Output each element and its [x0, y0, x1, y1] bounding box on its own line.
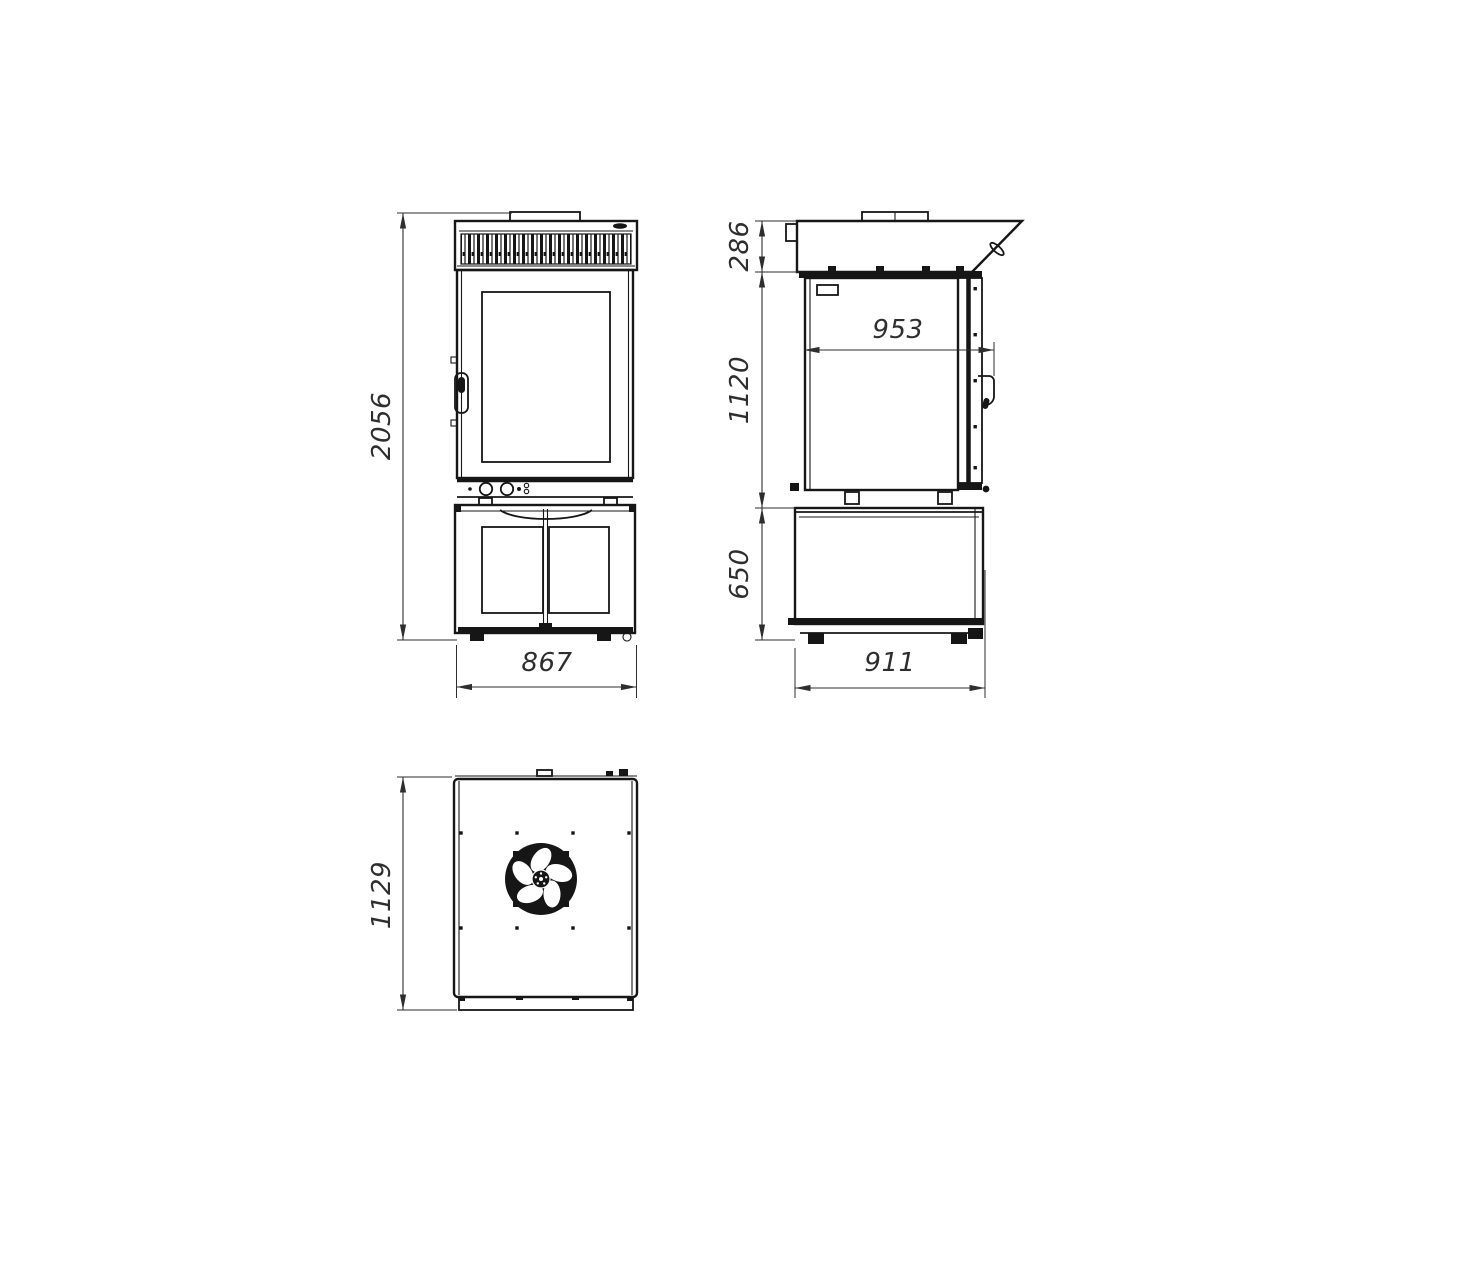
side-ventilation-hood: [786, 221, 1022, 272]
stand-caster-icon: [623, 633, 631, 641]
side-stand-foot-right: [951, 633, 967, 644]
technical-drawing-page: 2056 867: [0, 0, 1467, 1284]
dim-side-oven-depth: 953: [804, 315, 994, 376]
side-view: 286 1120 650 953 911: [725, 212, 1022, 698]
dim-side-heights: 286 1120 650: [725, 220, 799, 640]
side-hood-tab: [786, 224, 797, 241]
front-oven-body: [451, 270, 633, 478]
front-view: 2056 867: [367, 212, 637, 698]
switch-dot-bottom: [524, 489, 528, 493]
dim-label-side-stand-height: 650: [725, 548, 755, 599]
dim-label-front-total-height: 2056: [367, 392, 397, 460]
dim-front-base-width: 867: [457, 645, 637, 698]
switch-dot-top: [524, 483, 528, 487]
side-door-top-cap: [956, 271, 982, 278]
stand-bottom-rail: [458, 627, 633, 633]
dim-label-side-hood-height: 286: [725, 220, 755, 271]
front-hood-indicator: [613, 223, 627, 229]
dim-label-side-oven-depth: 953: [872, 315, 923, 345]
side-oven-foot-right: [938, 492, 952, 504]
dim-label-top-overall-depth: 1129: [367, 861, 397, 929]
dim-label-front-base-width: 867: [521, 648, 572, 678]
side-rating-plate: [817, 285, 838, 295]
side-chimney: [862, 212, 928, 221]
control-knob-left: [480, 483, 492, 495]
dim-top-overall-depth: 1129: [367, 777, 457, 1010]
dim-label-side-stand-depth: 911: [864, 648, 915, 678]
dim-label-side-oven-height: 1120: [725, 356, 755, 424]
top-view: 1129: [367, 769, 637, 1010]
stand-door-panel-left: [482, 527, 543, 613]
side-door-bottom-bracket: [958, 483, 982, 490]
front-louver-grille: [461, 234, 631, 264]
indicator-lamp-icon: [468, 487, 472, 491]
top-chimney: [537, 770, 552, 776]
dim-front-total-height: 2056: [367, 213, 512, 640]
stand-foot-right: [597, 633, 611, 641]
front-chimney: [510, 212, 580, 221]
stand-door-panel-right: [549, 527, 609, 613]
side-stand-bottom-rail: [795, 618, 983, 624]
front-door-glass: [482, 292, 610, 462]
control-knob-right: [501, 483, 513, 495]
stand-foot-left: [470, 633, 484, 641]
front-control-panel: [457, 480, 633, 497]
front-ventilation-hood: [455, 221, 637, 270]
side-stand-foot-left: [808, 633, 824, 644]
front-stand-cabinet: [455, 505, 635, 641]
fan-icon: [505, 843, 577, 915]
side-oven-body: [790, 271, 994, 504]
indicator-dot-icon: [517, 487, 521, 491]
side-hood-hook: [989, 241, 1006, 257]
side-oven-foot-left: [845, 492, 859, 504]
technical-drawing-canvas: 2056 867: [0, 0, 1467, 1284]
side-stand-cabinet: [788, 508, 983, 644]
